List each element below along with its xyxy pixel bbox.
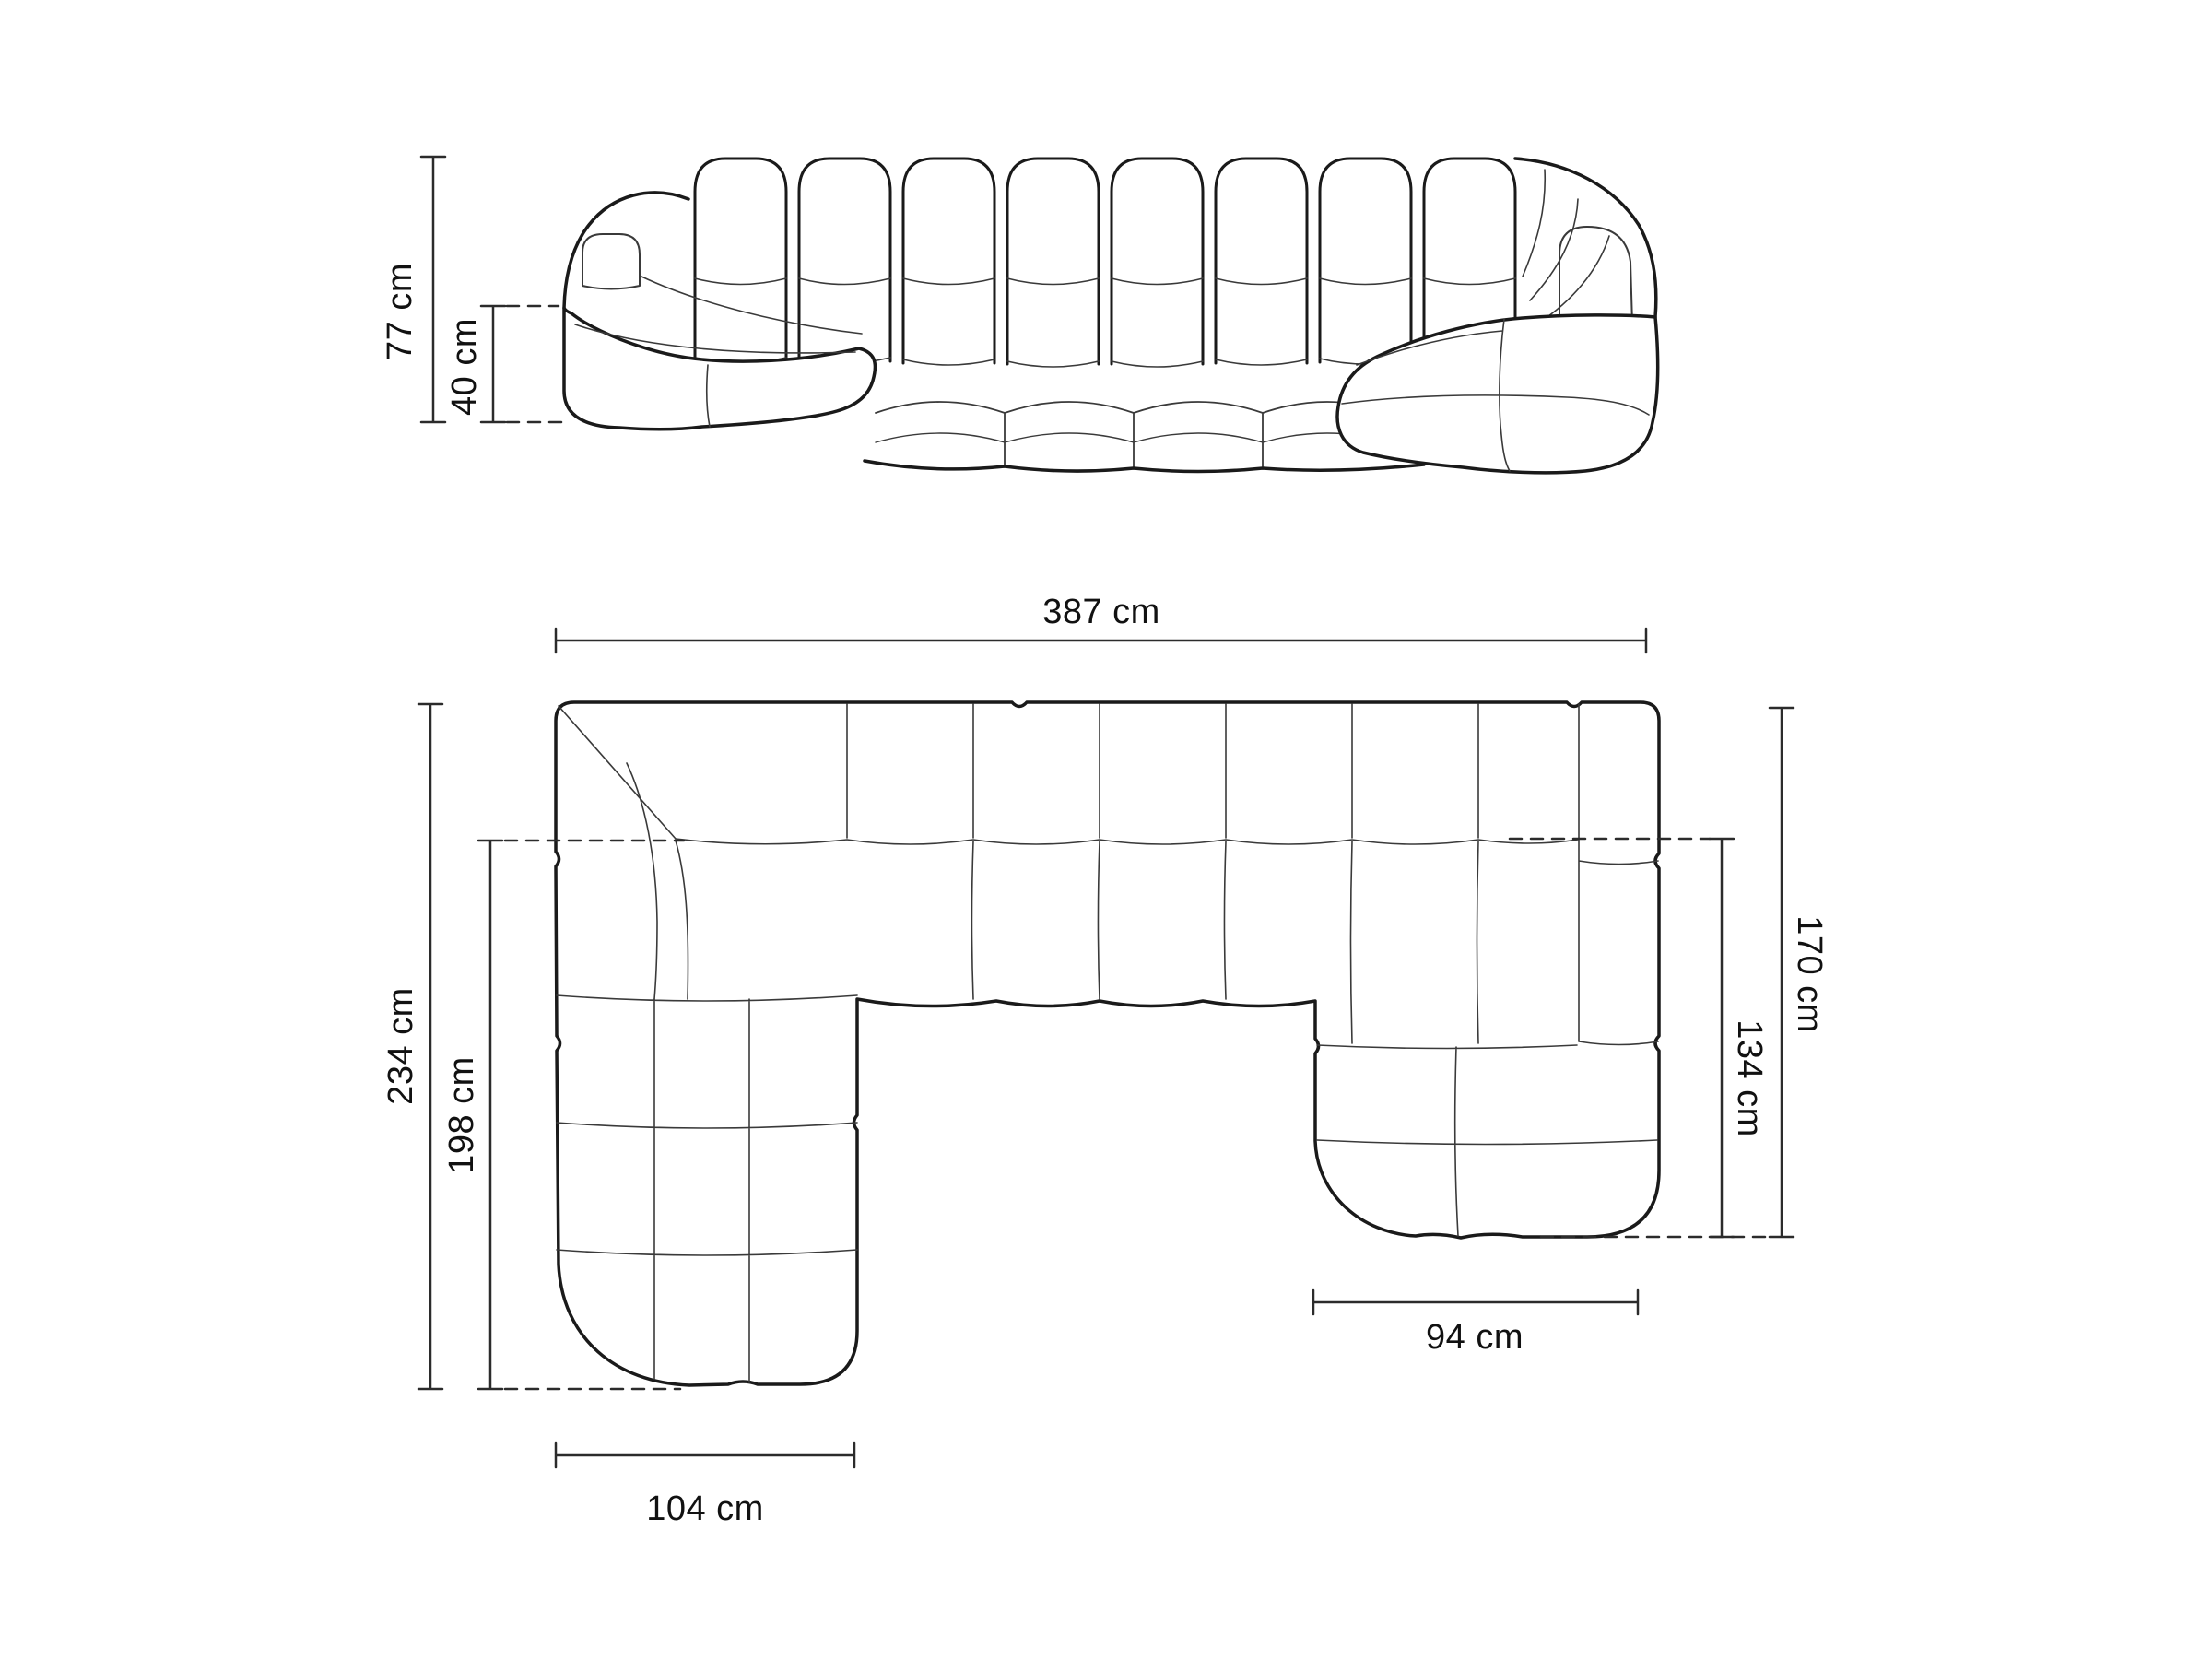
- dim-line-104: [556, 1443, 854, 1467]
- dim-label-overall-depth-right: 170 cm: [1790, 915, 1827, 1033]
- front-left-armrest-seam: [641, 276, 862, 334]
- front-left-chaise: [564, 308, 875, 429]
- dim-label-left-chaise-width: 104 cm: [646, 1491, 764, 1528]
- dim-line-198: [478, 841, 502, 1389]
- plan-outline: [556, 702, 1659, 1385]
- front-view-sofa-drawing: [564, 159, 1658, 473]
- dim-label-inner-depth-right: 134 cm: [1730, 1019, 1767, 1137]
- top-view-sofa-drawing: [556, 702, 1659, 1385]
- front-view-dimension-lines: [421, 157, 566, 422]
- front-seat-bottom-edge: [865, 461, 1424, 472]
- dim-label-overall-width: 387 cm: [1042, 594, 1160, 631]
- dim-line-234: [418, 704, 442, 1389]
- dim-line-387: [556, 629, 1646, 653]
- dim-line-77: [421, 157, 445, 422]
- front-left-armrest-panel: [582, 234, 640, 289]
- dim-line-94: [1313, 1290, 1638, 1314]
- dim-label-overall-height: 77 cm: [382, 263, 419, 360]
- sofa-dimension-diagram-page: 77 cm 40 cm 387 cm 234 cm 198 cm 170 cm …: [0, 0, 2212, 1659]
- dim-dashed-40: [507, 306, 566, 422]
- front-right-chaise: [1337, 315, 1658, 473]
- dim-label-inner-depth-left: 198 cm: [444, 1056, 481, 1174]
- front-back-cushions: [695, 159, 1515, 364]
- dim-label-right-chaise-width: 94 cm: [1426, 1320, 1524, 1357]
- diagram-canvas: [0, 0, 2212, 1659]
- dim-label-seat-height: 40 cm: [447, 318, 484, 416]
- dim-line-40: [481, 306, 505, 422]
- dim-label-overall-depth-left: 234 cm: [383, 987, 420, 1105]
- front-seat-scallops: [876, 402, 1392, 467]
- front-right-corner-pleats: [1523, 170, 1609, 323]
